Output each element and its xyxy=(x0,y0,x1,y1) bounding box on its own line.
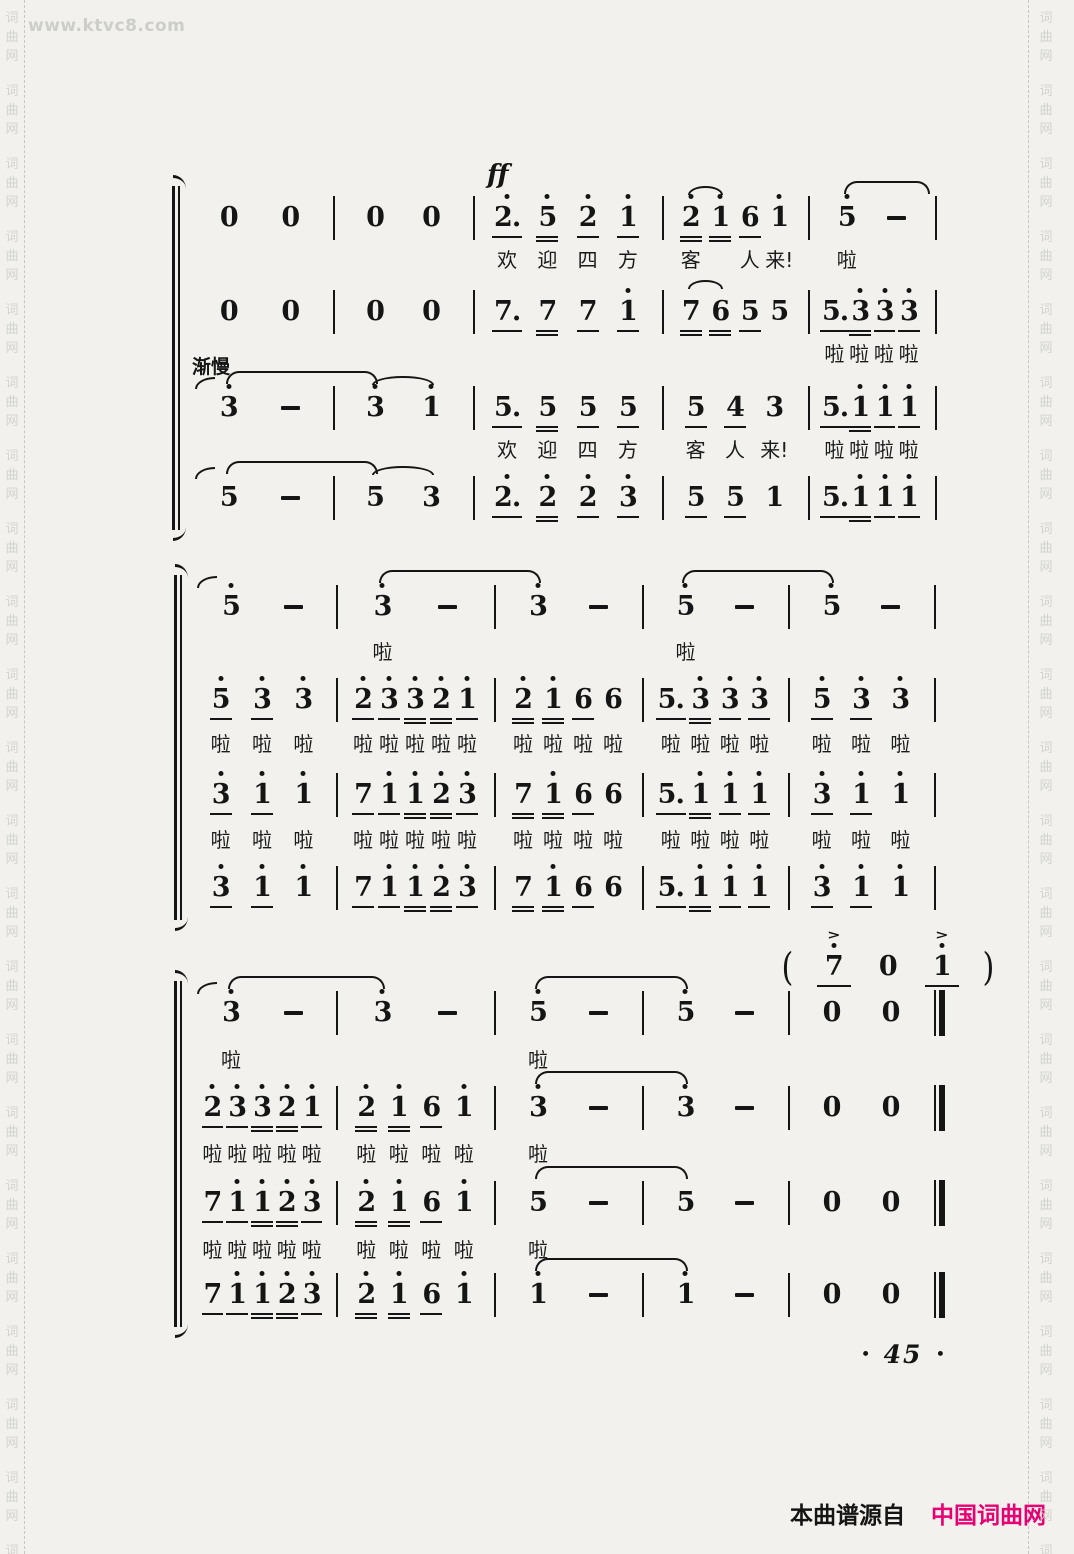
note-token xyxy=(281,483,300,513)
underline xyxy=(898,426,920,428)
watermark-char: 曲 xyxy=(1039,31,1052,44)
final-barline-thin xyxy=(934,1180,936,1226)
note-token xyxy=(735,1188,754,1218)
measure-lyrics: 客人来! xyxy=(662,245,808,271)
underline xyxy=(355,1126,377,1128)
page-number: • 45 • xyxy=(848,1340,958,1369)
note-digit: 2 xyxy=(278,1189,296,1217)
note-cell: 1 xyxy=(402,780,428,810)
note-digit: 0 xyxy=(882,1281,900,1309)
measure-notes: 3 xyxy=(494,592,642,622)
note-token: 1 xyxy=(544,685,562,715)
note-cell: 1 xyxy=(765,203,795,233)
octave-dot xyxy=(550,771,555,776)
note-digit: 1 xyxy=(458,686,476,714)
tie-arc xyxy=(226,461,378,474)
note-digit: 5. xyxy=(822,394,848,422)
note-cell: 1 xyxy=(538,873,568,903)
underline xyxy=(709,334,731,336)
note-token xyxy=(284,998,303,1028)
note-cell: 0 xyxy=(260,297,322,327)
note-digit: 5. xyxy=(822,298,848,326)
watermark-char: 曲 xyxy=(1039,104,1052,117)
underline xyxy=(404,722,426,724)
note-cell: 5. xyxy=(656,873,686,903)
note-digit: 2 xyxy=(204,1094,222,1122)
note-digit: 3 xyxy=(852,686,870,714)
note-digit: 3 xyxy=(619,484,637,512)
watermark-char: 曲 xyxy=(1039,1345,1052,1358)
note-cell: 2 xyxy=(350,1093,383,1123)
underline xyxy=(378,906,400,908)
note-token: 1 xyxy=(900,393,918,423)
dash-glyph xyxy=(284,1011,303,1016)
note-cell: 3 xyxy=(225,1093,250,1123)
note-cell: 3 xyxy=(299,1280,324,1310)
note-cell: 3 xyxy=(350,998,415,1028)
note-token: 0 xyxy=(882,1280,900,1310)
watermark-char: 曲 xyxy=(5,615,18,628)
watermark-char-group: 词曲网 xyxy=(1039,1472,1052,1523)
measure-notes: 00 xyxy=(788,998,934,1028)
octave-dot xyxy=(396,1271,401,1276)
underline xyxy=(404,910,426,912)
note-digit: 0 xyxy=(366,204,384,232)
note-token: 2 xyxy=(682,203,700,233)
watermark-char-group: 词曲网 xyxy=(5,1326,18,1377)
note-cell: 3 xyxy=(802,780,841,810)
watermark-char: 曲 xyxy=(5,1199,18,1212)
note-cell: 3 xyxy=(454,780,480,810)
note-digit: 7 xyxy=(538,298,556,326)
note-digit: 2. xyxy=(494,484,520,512)
watermark-char-group: 词曲网 xyxy=(1039,1107,1052,1158)
note-cell: 3 xyxy=(200,998,262,1028)
note-token: 1 xyxy=(253,873,271,903)
note-cell: 1 xyxy=(897,483,921,513)
note-cell: 3 xyxy=(656,1093,715,1123)
watermark-char: 网 xyxy=(5,488,18,501)
note-digit: 1 xyxy=(711,204,729,232)
underline xyxy=(680,330,702,332)
note-token: 3 xyxy=(222,998,240,1028)
measure-notes: 5 xyxy=(178,483,333,513)
octave-dot xyxy=(228,989,233,994)
note-digit: 5. xyxy=(822,484,848,512)
octave-dot xyxy=(218,771,223,776)
watermark-char: 词 xyxy=(1039,961,1052,974)
underline xyxy=(536,236,558,238)
note-token xyxy=(735,1093,754,1123)
measure-notes: 7166 xyxy=(494,873,642,903)
note-token xyxy=(735,1280,754,1310)
note-cell: 0 xyxy=(861,1188,920,1218)
underline xyxy=(210,813,232,815)
watermark-char: 网 xyxy=(5,1291,18,1304)
note-token: 3 xyxy=(228,1093,246,1123)
octave-dot xyxy=(364,1084,369,1089)
measure-notes: 5 xyxy=(642,998,788,1028)
note-token: 1 xyxy=(253,780,271,810)
lyric-syllable: 啦 xyxy=(656,636,715,665)
watermark-char: 词 xyxy=(1039,85,1052,98)
watermark-char: 曲 xyxy=(5,761,18,774)
note-cell xyxy=(568,592,628,622)
watermark-char: 曲 xyxy=(5,1418,18,1431)
note-token: 1 xyxy=(851,483,869,513)
octave-dot xyxy=(819,864,824,869)
watermark-char: 网 xyxy=(1039,1291,1052,1304)
lyric-syllable: 客 xyxy=(676,434,715,463)
note-digit: 5 xyxy=(677,1189,695,1217)
note-digit: 0 xyxy=(823,999,841,1027)
note-cell: 1 xyxy=(872,483,896,513)
watermark-char: 网 xyxy=(5,342,18,355)
note-digit: 1 xyxy=(770,204,788,232)
watermark-char: 词 xyxy=(5,1399,18,1412)
lyric-syllable: 啦 xyxy=(402,728,428,757)
note-digit: 1 xyxy=(544,686,562,714)
note-digit: 3 xyxy=(220,394,238,422)
note-cell xyxy=(568,1093,628,1123)
note-token: 0 xyxy=(873,952,903,982)
footer-site-name: 中国词曲网 xyxy=(931,1503,1046,1529)
note-token: 1 xyxy=(876,393,894,423)
note-cell: 3 xyxy=(198,393,260,423)
watermark-char: 网 xyxy=(5,561,18,574)
watermark-char: 词 xyxy=(5,742,18,755)
underline xyxy=(689,813,711,815)
underline xyxy=(276,1126,298,1128)
underline xyxy=(251,1130,273,1132)
accent-mark: > xyxy=(935,927,948,942)
note-cell: 2 xyxy=(350,1280,383,1310)
note-token: 5. xyxy=(822,483,848,513)
note-token: 6 xyxy=(574,873,592,903)
note-digit: 3 xyxy=(406,686,424,714)
octave-dot xyxy=(858,288,863,293)
lyric-syllable: 啦 xyxy=(715,728,745,757)
note-cell: 1 xyxy=(538,685,568,715)
underline xyxy=(536,330,558,332)
note-cell: 1 xyxy=(383,1093,416,1123)
measure-notes: 5 xyxy=(788,592,934,622)
watermark-char: 词 xyxy=(5,1472,18,1485)
note-cell: 5 xyxy=(765,297,795,327)
watermark-char: 词 xyxy=(1039,523,1052,536)
note-cell: 0 xyxy=(802,998,861,1028)
note-token: 7 xyxy=(579,297,597,327)
note-token: 5 xyxy=(220,483,238,513)
note-cell: 1 xyxy=(241,780,282,810)
note-cell: 6 xyxy=(568,873,598,903)
note-token: 1 xyxy=(422,393,440,423)
note-cell: 6 xyxy=(415,1280,448,1310)
octave-dot xyxy=(438,771,443,776)
octave-dot xyxy=(727,771,732,776)
page-number-value: 45 xyxy=(884,1340,923,1369)
watermark-char: 曲 xyxy=(1039,834,1052,847)
lyric-syllable: 啦 xyxy=(822,244,872,273)
note-token xyxy=(438,998,457,1028)
watermark-char: 曲 xyxy=(1039,1199,1052,1212)
underline xyxy=(577,236,599,238)
note-token: 5 xyxy=(726,483,744,513)
note-token: 2. xyxy=(494,203,520,233)
note-cell: 5 xyxy=(527,203,567,233)
underline xyxy=(512,817,534,819)
note-token: 1 xyxy=(750,873,768,903)
barline xyxy=(934,866,936,910)
note-token: 1 xyxy=(851,393,869,423)
octave-dot xyxy=(819,771,824,776)
dash-glyph xyxy=(589,605,608,610)
underline xyxy=(430,813,452,815)
note-cell: 5. xyxy=(822,483,848,513)
barline xyxy=(935,290,937,334)
note-cell: 5 xyxy=(527,393,567,423)
watermark-char: 曲 xyxy=(5,1272,18,1285)
lyric-syllable: 啦 xyxy=(508,824,538,853)
note-token xyxy=(887,203,906,233)
final-barline-thick xyxy=(939,1272,945,1318)
octave-dot xyxy=(906,288,911,293)
note-cell: 5 xyxy=(676,483,715,513)
watermark-char-group: 词曲网 xyxy=(1039,523,1052,574)
note-cell: 5 xyxy=(347,483,403,513)
note-digit: 0 xyxy=(366,298,384,326)
octave-dot xyxy=(412,676,417,681)
measure-lyrics: 啦啦啦啦啦 xyxy=(180,1139,336,1165)
note-digit: 1 xyxy=(691,781,709,809)
final-barline-thin xyxy=(934,1272,936,1318)
note-token: 1 xyxy=(253,1280,271,1310)
note-token: 1 xyxy=(891,780,909,810)
note-token: 5 xyxy=(687,483,705,513)
underline xyxy=(202,1126,224,1128)
note-cell: 6 xyxy=(598,873,628,903)
cue-phrase: (7>01>) xyxy=(780,952,996,982)
watermark-char: 曲 xyxy=(1039,907,1052,920)
octave-dot xyxy=(438,676,443,681)
octave-dot xyxy=(898,771,903,776)
note-token: 5 xyxy=(813,685,831,715)
measure-lyrics: 客人来! xyxy=(662,435,808,461)
underline xyxy=(388,1221,410,1223)
note-digit: 5 xyxy=(529,1189,547,1217)
tie-arc xyxy=(682,570,834,583)
note-digit: 7 xyxy=(204,1281,222,1309)
measure-notes: 7655 xyxy=(662,297,808,327)
note-cell: 1 xyxy=(897,393,921,423)
underline xyxy=(420,1126,442,1128)
octave-dot xyxy=(284,1271,289,1276)
note-token: 2 xyxy=(204,1093,222,1123)
underline xyxy=(301,1313,323,1315)
note-cell: 1 xyxy=(376,780,402,810)
measure-notes: 1 xyxy=(642,1280,788,1310)
watermark-char: 曲 xyxy=(5,688,18,701)
note-digit: 5 xyxy=(529,999,547,1027)
note-digit: 6 xyxy=(604,781,622,809)
note-cell: 1 xyxy=(841,873,880,903)
underline xyxy=(577,516,599,518)
note-digit: 5 xyxy=(538,394,556,422)
note-digit: 3 xyxy=(691,686,709,714)
underline xyxy=(388,1130,410,1132)
underline xyxy=(542,906,564,908)
watermark-char: 网 xyxy=(1039,488,1052,501)
underline xyxy=(748,906,770,908)
measure-notes: 543 xyxy=(662,393,808,423)
note-digit: 1 xyxy=(294,874,312,902)
note-cell xyxy=(568,1188,628,1218)
underline xyxy=(542,813,564,815)
watermark-char: 曲 xyxy=(5,1345,18,1358)
octave-dot xyxy=(906,474,911,479)
note-token: 7 xyxy=(682,297,700,327)
watermark-char: 网 xyxy=(5,1072,18,1085)
watermark-char: 词 xyxy=(5,1545,18,1554)
lyric-syllable: 啦 xyxy=(656,824,686,853)
note-cell: 5 xyxy=(802,592,861,622)
note-token: 1 xyxy=(750,780,768,810)
note-cell: 5 xyxy=(735,297,765,327)
note-digit: 3 xyxy=(212,874,230,902)
measure-notes: 533 xyxy=(180,685,336,715)
lyric-syllable: 啦 xyxy=(283,728,324,757)
note-cell: 2 xyxy=(274,1188,299,1218)
underline xyxy=(724,426,746,428)
octave-dot xyxy=(585,194,590,199)
dash-glyph xyxy=(589,1201,608,1206)
note-cell: 3 xyxy=(250,1093,275,1123)
watermark-char: 网 xyxy=(1039,561,1052,574)
octave-dot xyxy=(461,1179,466,1184)
note-cell: 7 xyxy=(508,780,538,810)
underline xyxy=(820,426,850,428)
note-digit: 3 xyxy=(374,999,392,1027)
note-digit: 6 xyxy=(422,1189,440,1217)
underline xyxy=(874,516,896,518)
note-token: 0 xyxy=(823,1280,841,1310)
octave-dot xyxy=(727,676,732,681)
note-token: 5 xyxy=(677,1188,695,1218)
underline xyxy=(849,516,871,518)
note-cell: 1 xyxy=(881,873,920,903)
watermark-char-group: 词曲网 xyxy=(1039,669,1052,720)
underline xyxy=(719,718,741,720)
lyric-syllable: 啦 xyxy=(241,824,282,853)
note-cell: 1 xyxy=(454,685,480,715)
underline xyxy=(617,516,639,518)
underline xyxy=(226,1313,248,1315)
note-token: 6 xyxy=(422,1280,440,1310)
note-digit: 1 xyxy=(406,781,424,809)
measure-notes: 5.333 xyxy=(808,297,935,327)
note-digit: 5 xyxy=(677,593,695,621)
octave-dot xyxy=(858,474,863,479)
note-cell: 5 xyxy=(608,393,648,423)
note-token: 1 xyxy=(852,873,870,903)
measure-lyrics: 啦 xyxy=(494,1045,642,1071)
octave-dot xyxy=(301,771,306,776)
lyric-syllable: 四 xyxy=(568,244,608,273)
watermark-char: 网 xyxy=(1039,1072,1052,1085)
measure-lyrics: 啦 xyxy=(494,1139,642,1165)
underline xyxy=(572,813,594,815)
watermark-char: 词 xyxy=(1039,377,1052,390)
measure-notes: 2161 xyxy=(336,1093,494,1123)
note-token: 1 xyxy=(380,780,398,810)
note-token: 5. xyxy=(658,685,684,715)
underline xyxy=(492,426,522,428)
note-cell xyxy=(715,1280,774,1310)
underline xyxy=(680,236,702,238)
underline xyxy=(849,426,871,428)
underline xyxy=(420,1313,442,1315)
note-digit: 3 xyxy=(222,999,240,1027)
octave-dot xyxy=(461,1271,466,1276)
note-token: 0 xyxy=(220,203,238,233)
octave-dot xyxy=(301,676,306,681)
octave-dot xyxy=(535,1084,540,1089)
measure-notes: 5.111 xyxy=(808,393,935,423)
note-cell: 1 xyxy=(241,873,282,903)
octave-dot xyxy=(386,676,391,681)
octave-dot xyxy=(235,1271,240,1276)
note-cell: 3 xyxy=(686,685,716,715)
lyric-syllable: 啦 xyxy=(200,1138,225,1167)
octave-dot xyxy=(386,864,391,869)
note-token: 3 xyxy=(422,483,440,513)
underline xyxy=(536,430,558,432)
note-cell: 2 xyxy=(568,203,608,233)
note-token: 6 xyxy=(574,780,592,810)
note-token: 5 xyxy=(579,393,597,423)
note-digit: 1 xyxy=(390,1281,408,1309)
note-token: 3 xyxy=(374,592,392,622)
octave-dot xyxy=(882,474,887,479)
note-cell: 1 xyxy=(872,393,896,423)
underline xyxy=(577,330,599,332)
note-digit: 3 xyxy=(813,874,831,902)
watermark-char: 网 xyxy=(1039,780,1052,793)
note-token: 0 xyxy=(823,998,841,1028)
underline xyxy=(572,718,594,720)
note-cell: 0 xyxy=(198,297,260,327)
underline xyxy=(430,722,452,724)
music-system: 53啦35啦5533啦啦啦23321啦啦啦啦啦2166啦啦啦啦5.333啦啦啦啦… xyxy=(180,585,950,955)
note-digit: 7 xyxy=(354,874,372,902)
tie-arc xyxy=(844,181,930,194)
page-number-dot: • xyxy=(935,1345,945,1365)
note-cell xyxy=(415,592,480,622)
underline xyxy=(719,813,741,815)
note-token: 0 xyxy=(823,1093,841,1123)
note-digit: 6 xyxy=(711,298,729,326)
octave-dot xyxy=(777,194,782,199)
watermark-char: 词 xyxy=(1039,742,1052,755)
note-digit: 2 xyxy=(432,781,450,809)
note-token: 3 xyxy=(765,393,783,423)
note-cell: 3 xyxy=(897,297,921,327)
lyric-syllable: 来! xyxy=(765,244,795,273)
note-token: 2 xyxy=(432,685,450,715)
octave-dot xyxy=(757,864,762,869)
lyric-syllable: 啦 xyxy=(250,1234,275,1263)
watermark-char-group: 词曲网 xyxy=(1039,888,1052,939)
